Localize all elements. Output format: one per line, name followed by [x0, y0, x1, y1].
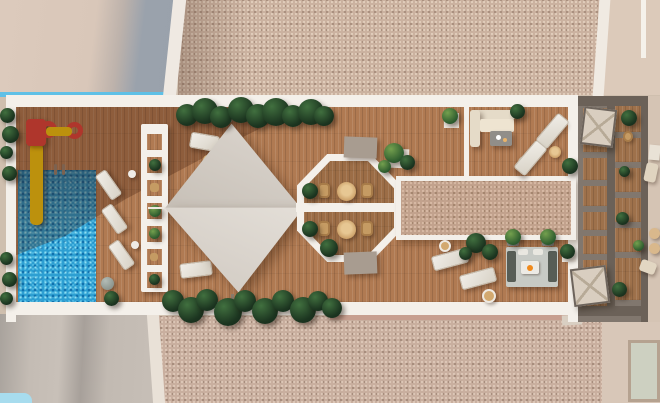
east-neighbor-ground: [648, 96, 660, 322]
shrub: [482, 244, 498, 260]
shade-sail-south: [160, 204, 308, 296]
wicker-chair: [361, 221, 373, 236]
potted-tree: [505, 229, 521, 245]
wicker-chair: [361, 183, 373, 198]
roof-top-right-gravel: [178, 0, 602, 95]
sofa-back-left: [470, 110, 480, 147]
octagon-walkway: [296, 203, 398, 212]
rooftop-aerial-render: [0, 0, 660, 403]
roof-top-far-right-concrete: [604, 0, 660, 95]
terrace-deck-cell: [583, 158, 607, 180]
octagon-shrub: [302, 221, 318, 237]
octagon-shrub: [302, 183, 318, 199]
hedge-bush: [322, 298, 342, 318]
hedge-bush: [0, 108, 15, 123]
potted-plant: [378, 160, 391, 173]
hedge-bush: [2, 272, 17, 287]
planter-block-north: [344, 136, 378, 158]
bench-sofa-left: [507, 251, 516, 282]
hedge-bush: [2, 126, 19, 143]
cushion: [518, 249, 528, 255]
ground-bottom-gravel: [156, 316, 606, 403]
tray-item: [503, 138, 507, 142]
hedge-bush: [0, 146, 13, 159]
coffee-table: [490, 131, 512, 146]
shrub: [104, 291, 119, 306]
tray-item: [496, 135, 501, 140]
terrace-plant: [612, 282, 627, 297]
terrace-plant: [621, 110, 637, 126]
storage-box-white: [648, 145, 660, 161]
cushion: [533, 249, 543, 255]
hedge-bush: [0, 292, 13, 305]
pergola-opening: [147, 180, 162, 196]
hedge-bush: [2, 166, 17, 181]
stone-ball-seat: [101, 277, 114, 290]
wicker-seat: [150, 183, 159, 192]
square-parasol: [580, 106, 617, 148]
shade-sail-fabric: [160, 204, 308, 296]
divider-wall: [464, 107, 469, 177]
terrace-plant: [619, 166, 630, 177]
potted-plant: [560, 244, 575, 259]
terrace-deck-cell: [583, 236, 607, 254]
potted-plant: [562, 158, 578, 174]
round-table-tan: [649, 243, 660, 254]
partition-wall-right: [641, 96, 648, 322]
wicker-chair: [318, 183, 330, 198]
shade-sail-north: [162, 120, 304, 212]
round-side-table: [549, 146, 561, 158]
planter-shrub: [149, 159, 161, 171]
octagon-shrub: [320, 239, 338, 257]
hedge-bush: [314, 106, 334, 126]
wicker-seat: [150, 253, 158, 261]
ground-bottom-left-concrete: [0, 314, 158, 403]
side-table-white: [128, 170, 136, 178]
terrace-deck-cell: [583, 212, 607, 230]
octagon-table: [337, 182, 356, 201]
terrace-plant: [633, 240, 644, 251]
square-parasol: [570, 265, 610, 307]
fire-flame: [527, 265, 533, 271]
wicker-chair: [318, 221, 330, 236]
octagon-table: [337, 220, 356, 239]
planter-shrub: [149, 274, 160, 285]
shrub: [459, 247, 472, 260]
parapet-line-top-right: [641, 0, 646, 58]
paver-court: [628, 340, 660, 402]
potted-plant: [510, 104, 525, 119]
potted-tree: [540, 229, 556, 245]
round-pouf: [439, 240, 451, 252]
potted-plant: [442, 108, 458, 124]
pergola-opening: [147, 157, 162, 173]
pool-reflection-corner: [0, 393, 32, 403]
planter-block-south: [344, 251, 378, 274]
round-table-tan: [649, 228, 660, 239]
hedge-bush: [0, 252, 13, 265]
side-table-white: [131, 241, 139, 249]
wicker-chair: [623, 131, 633, 142]
shade-sail-fabric: [162, 120, 304, 212]
round-pouf: [482, 289, 496, 303]
potted-plant: [400, 155, 415, 170]
planter-shrub: [149, 228, 160, 239]
bench-sofa-right: [548, 251, 557, 282]
pergola-opening: [147, 134, 162, 150]
roof-top-left-concrete: [0, 0, 176, 97]
terrace-plant: [616, 212, 629, 225]
terrace-deck-cell: [583, 186, 607, 206]
